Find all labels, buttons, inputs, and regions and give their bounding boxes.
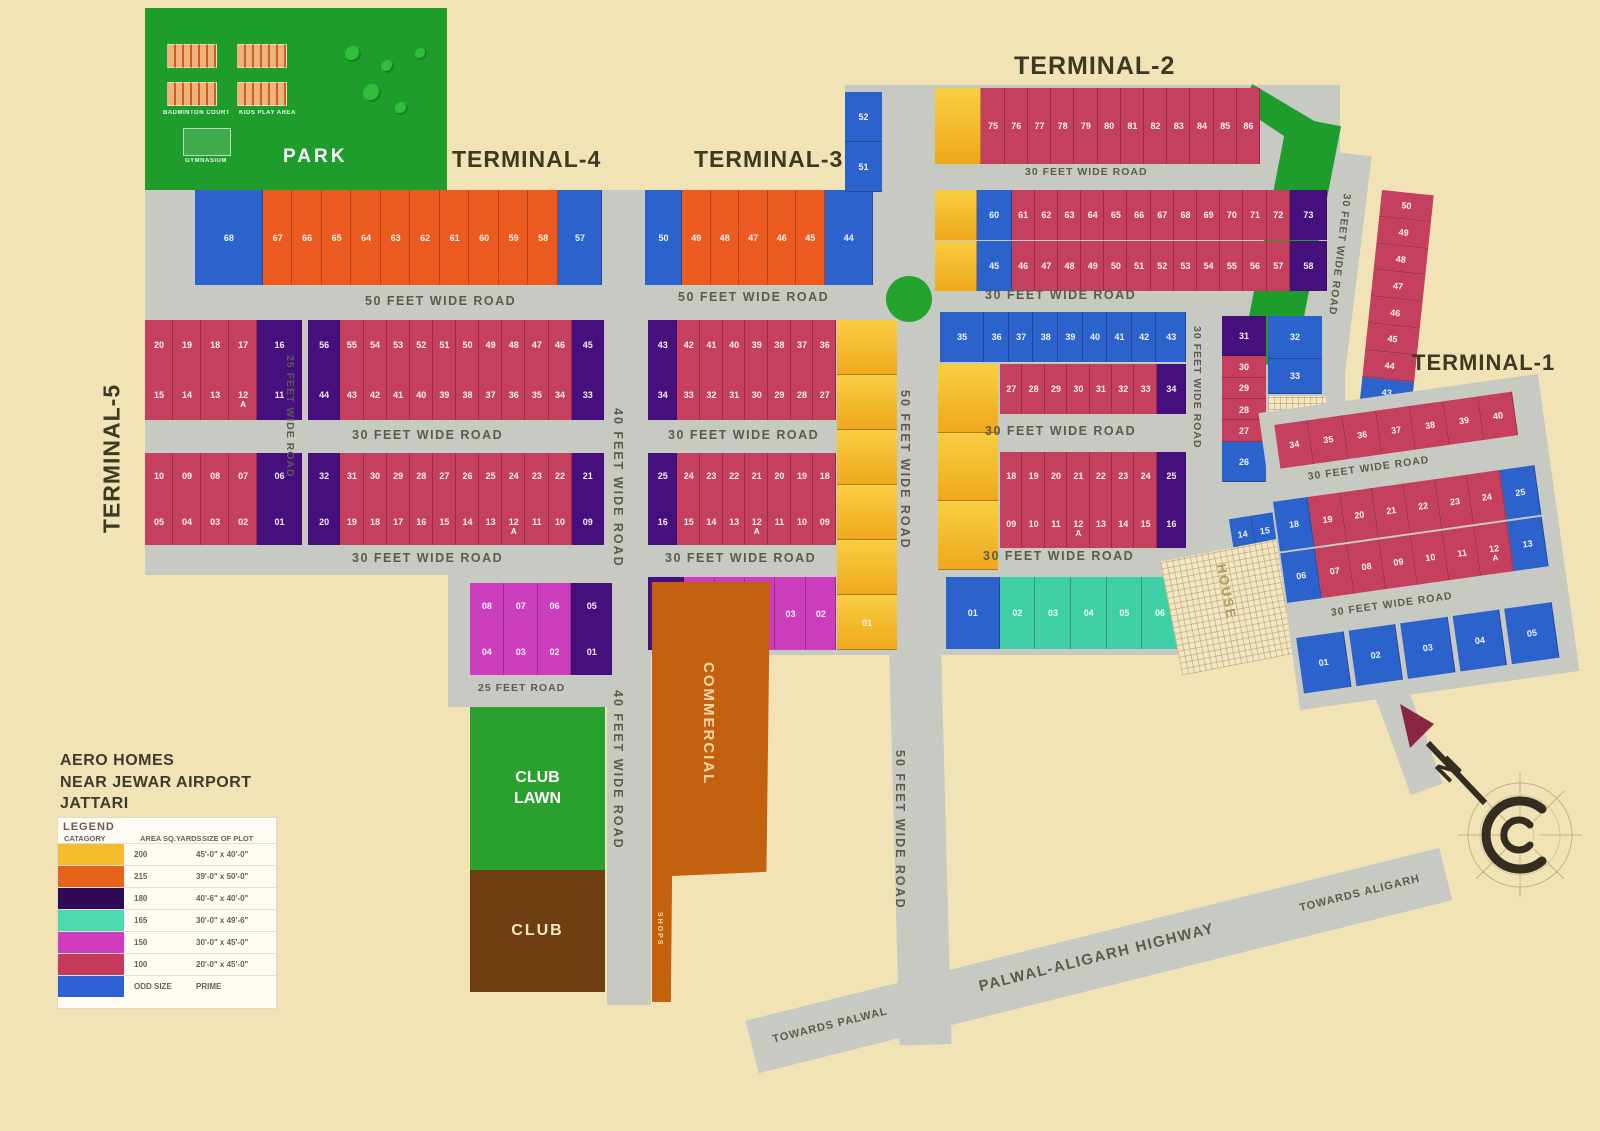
road-label: 50 FEET WIDE ROAD bbox=[678, 290, 829, 304]
plot-cell: 75 bbox=[981, 88, 1004, 164]
plot-cell: 51 bbox=[1127, 241, 1150, 291]
plot-cell: 17 bbox=[229, 320, 257, 370]
plot-cell: 16 bbox=[1157, 500, 1186, 548]
terminal3-side-column: 5251 bbox=[845, 92, 882, 192]
plot-cell: 68 bbox=[195, 190, 263, 285]
badminton-court-icon bbox=[237, 44, 287, 68]
central-block-upper-row1: 565554535251504948474645 bbox=[308, 320, 604, 370]
legend-area: 100 bbox=[124, 960, 196, 969]
plot-cell: 29 bbox=[768, 370, 791, 420]
plot-cell: 37 bbox=[1009, 312, 1034, 362]
plot-cell: 31 bbox=[1222, 316, 1266, 356]
plot-cell: 45 bbox=[796, 190, 825, 285]
legend-swatch bbox=[58, 844, 124, 865]
plot-cell: 78 bbox=[1051, 88, 1074, 164]
roundabout bbox=[886, 276, 932, 322]
plot-cell bbox=[837, 485, 897, 540]
plot-cell: 09 bbox=[173, 453, 201, 499]
legend: LEGEND CATAGORY AREA SQ.YARDS SIZE OF PL… bbox=[58, 818, 276, 1008]
legend-size: 39'-0" x 50'-0" bbox=[196, 872, 276, 881]
mid-block-row1: 4342414039383736 bbox=[648, 320, 836, 370]
left-magenta-row1: 08070605 bbox=[470, 583, 612, 629]
plot-cell: 65 bbox=[1104, 190, 1127, 240]
plot-cell: 36 bbox=[813, 320, 836, 370]
plot-cell: 51 bbox=[845, 142, 882, 192]
plot-cell: 31 bbox=[340, 453, 363, 499]
plot-cell: 53 bbox=[1174, 241, 1197, 291]
plot-cell: 37 bbox=[479, 370, 502, 420]
plot-cell: 41 bbox=[700, 320, 723, 370]
plot-cell: 05 bbox=[1107, 577, 1143, 649]
road-label: 25 FEET WIDE ROAD bbox=[284, 355, 296, 478]
plot-cell: 04 bbox=[470, 629, 504, 675]
right-column1: 313029282726 bbox=[1222, 316, 1266, 482]
plot-cell: 66 bbox=[292, 190, 322, 285]
legend-swatch bbox=[58, 866, 124, 887]
plot-cell: 02 bbox=[806, 577, 836, 650]
plot-cell: 48 bbox=[1058, 241, 1081, 291]
plot-cell: 42 bbox=[677, 320, 700, 370]
road-label: 40 FEET WIDE ROAD bbox=[611, 690, 625, 850]
plot-cell: 42 bbox=[364, 370, 387, 420]
plot-cell: 20 bbox=[308, 499, 340, 545]
right-block-row1: 2728293031323334 bbox=[1000, 364, 1186, 414]
road-label: 25 FEET ROAD bbox=[478, 682, 565, 694]
plot-cell: 35 bbox=[525, 370, 548, 420]
plot-cell: 50 bbox=[645, 190, 682, 285]
plot-cell: 38 bbox=[1033, 312, 1058, 362]
plot-cell: 02 bbox=[1348, 624, 1403, 686]
legend-row: 16530'-0" x 49'-6" bbox=[58, 909, 276, 931]
gym-icon bbox=[183, 128, 231, 156]
plot-cell: 33 bbox=[1134, 364, 1156, 414]
plot-cell: 81 bbox=[1121, 88, 1144, 164]
legend-size: 30'-0" x 49'-6" bbox=[196, 916, 276, 925]
terminal1-label: TERMINAL-1 bbox=[1412, 350, 1555, 376]
kids-play-icon bbox=[237, 82, 287, 106]
plot-cell: 45 bbox=[572, 320, 604, 370]
plot-cell: 44 bbox=[308, 370, 340, 420]
plot-cell: 16 bbox=[648, 499, 677, 545]
road-label: 30 FEET WIDE ROAD bbox=[983, 549, 1134, 563]
plot-cell: 13 bbox=[201, 370, 229, 420]
plot-cell: 29 bbox=[1045, 364, 1067, 414]
title-line2: NEAR JEWAR AIRPORT bbox=[60, 772, 252, 794]
right-blue-row: 353637383940414243 bbox=[940, 312, 1186, 362]
plot-cell: 38 bbox=[768, 320, 791, 370]
site-plan-map: 30 FEET WIDE ROAD 30 FEET WIDE ROAD BADM… bbox=[0, 0, 1600, 1131]
plot-cell: 33 bbox=[1268, 359, 1322, 394]
terminal5-blockA-row1: 2019181716 bbox=[145, 320, 302, 370]
legend-swatch bbox=[58, 910, 124, 931]
yellow-column-central: 01 bbox=[837, 320, 897, 650]
tree-icon bbox=[363, 84, 381, 102]
commercial: COMMERCIAL SHOPS bbox=[652, 582, 770, 1002]
plot-cell: 13 bbox=[1090, 500, 1112, 548]
plot-cell: 27 bbox=[433, 453, 456, 499]
plot-cell: 35 bbox=[940, 312, 984, 362]
plot-cell: 20 bbox=[1045, 452, 1067, 500]
plot-cell: 46 bbox=[1012, 241, 1035, 291]
plot-cell: 62 bbox=[1035, 190, 1058, 240]
plot-cell: 36 bbox=[984, 312, 1009, 362]
legend-row: 10020'-0" x 45'-0" bbox=[58, 953, 276, 975]
plot-cell: 17 bbox=[387, 499, 410, 545]
legend-row: 15030'-0" x 45'-0" bbox=[58, 931, 276, 953]
plot-cell: 01 bbox=[571, 629, 612, 675]
plot-cell: 03 bbox=[201, 499, 229, 545]
road-label: 40 FEET WIDE ROAD bbox=[611, 408, 625, 568]
terminal5-blockB-row1: 1009080706 bbox=[145, 453, 302, 499]
plot-cell: 26 bbox=[456, 453, 479, 499]
plot-cell: 18 bbox=[813, 453, 836, 499]
road-label: 30 FEET WIDE ROAD bbox=[985, 288, 1136, 302]
plot-cell: 36 bbox=[502, 370, 525, 420]
plot-cell: 28 bbox=[1022, 364, 1044, 414]
project-title: AERO HOMES NEAR JEWAR AIRPORT JATTARI bbox=[60, 750, 252, 815]
legend-size: 40'-6" x 40'-0" bbox=[196, 894, 276, 903]
terminal5-blockA-row2: 15141312A11 bbox=[145, 370, 302, 420]
road-label: 30 FEET WIDE ROAD bbox=[352, 551, 503, 565]
plot-cell: 85 bbox=[1214, 88, 1237, 164]
terminal5-label: TERMINAL-5 bbox=[99, 349, 126, 569]
mid-block-row2: 3433323130292827 bbox=[648, 370, 836, 420]
road-label: 50 FEET WIDE ROAD bbox=[893, 750, 907, 910]
plot-cell: 70 bbox=[1220, 190, 1243, 240]
plot-cell bbox=[837, 430, 897, 485]
plot-cell: 63 bbox=[1058, 190, 1081, 240]
plot-cell: 20 bbox=[768, 453, 791, 499]
plot-cell: 40 bbox=[410, 370, 433, 420]
plot-cell: 66 bbox=[1127, 190, 1150, 240]
plot-cell: 47 bbox=[1035, 241, 1058, 291]
plot-cell: 41 bbox=[1107, 312, 1132, 362]
club-lawn: CLUB LAWN bbox=[470, 707, 605, 870]
legend-size: PRIME bbox=[196, 982, 276, 991]
plot-cell bbox=[935, 88, 981, 164]
plot-cell: 03 bbox=[775, 577, 805, 650]
plot-cell: 08 bbox=[470, 583, 504, 629]
plot-cell: 38 bbox=[456, 370, 479, 420]
terminal4-label: TERMINAL-4 bbox=[452, 146, 601, 173]
mid-block-row3: 2524232221201918 bbox=[648, 453, 836, 499]
plot-cell: 04 bbox=[1452, 609, 1507, 671]
highway-name: PALWAL-ALIGARH HIGHWAY bbox=[977, 920, 1216, 995]
plot-cell: 15 bbox=[1134, 500, 1156, 548]
road-label: 50 FEET WIDE ROAD bbox=[898, 390, 912, 550]
central-block-lower-row2: 201918171615141312A111009 bbox=[308, 499, 604, 545]
plot-cell: 10 bbox=[1022, 500, 1044, 548]
legend-area: 150 bbox=[124, 938, 196, 947]
club-lawn-label: CLUB LAWN bbox=[503, 768, 573, 810]
plot-cell: 30 bbox=[745, 370, 768, 420]
right-block-row3: 09101112A13141516 bbox=[1000, 500, 1186, 548]
plot-cell: 08 bbox=[201, 453, 229, 499]
terminal1-fan: 34353637383940 30 FEET WIDE ROAD 1819202… bbox=[1258, 374, 1579, 710]
legend-area: ODD SIZE bbox=[124, 982, 196, 991]
tree-icon bbox=[415, 48, 427, 60]
plot-cell: 52 bbox=[845, 92, 882, 142]
plot-cell: 34 bbox=[549, 370, 572, 420]
plot-cell: 57 bbox=[1267, 241, 1290, 291]
plot-cell: 22 bbox=[1090, 452, 1112, 500]
plot-cell: 13 bbox=[479, 499, 502, 545]
plot-cell: 68 bbox=[1174, 190, 1197, 240]
plot-cell: 09 bbox=[572, 499, 604, 545]
plot-cell: 25 bbox=[648, 453, 677, 499]
shops-label: SHOPS bbox=[656, 912, 663, 947]
plot-cell: 21 bbox=[1067, 452, 1089, 500]
right-column2: 3233 bbox=[1268, 316, 1322, 394]
plot-cell: 26 bbox=[1222, 442, 1266, 482]
house-label: HOUSE bbox=[1214, 563, 1239, 621]
plot-cell: 34 bbox=[648, 370, 677, 420]
highway: TOWARDS PALWAL PALWAL-ALIGARH HIGHWAY TO… bbox=[745, 848, 1452, 1073]
plot-cell: 45 bbox=[977, 241, 1012, 291]
plot-cell: 50 bbox=[1104, 241, 1127, 291]
terminal2-label: TERMINAL-2 bbox=[1014, 52, 1175, 81]
club-label: CLUB bbox=[511, 922, 563, 940]
legend-area: 200 bbox=[124, 850, 196, 859]
plot-cell: 62 bbox=[410, 190, 440, 285]
plot-cell: 30 bbox=[364, 453, 387, 499]
plot-cell: 14 bbox=[700, 499, 723, 545]
plot-cell: 02 bbox=[229, 499, 257, 545]
terminal3-plot-row: 50494847464544 bbox=[645, 190, 873, 285]
plot-cell: 14 bbox=[1112, 500, 1134, 548]
plot-cell: 11 bbox=[525, 499, 548, 545]
plot-cell: 03 bbox=[1400, 617, 1455, 679]
plot-cell: 10 bbox=[549, 499, 572, 545]
plot-cell: 12A bbox=[745, 499, 768, 545]
plot-cell: 63 bbox=[381, 190, 411, 285]
plot-cell: 64 bbox=[1081, 190, 1104, 240]
plot-cell: 39 bbox=[433, 370, 456, 420]
plot-cell: 05 bbox=[571, 583, 612, 629]
plot-cell: 46 bbox=[768, 190, 797, 285]
plot-cell: 24 bbox=[1134, 452, 1156, 500]
terminal4-plot-row: 686766656463626160595857 bbox=[195, 190, 602, 285]
plot-cell: 07 bbox=[229, 453, 257, 499]
plot-cell: 30 bbox=[1067, 364, 1089, 414]
terminal2-top-row: 757677787980818283848586 bbox=[935, 88, 1260, 164]
legend-title: LEGEND bbox=[58, 818, 276, 834]
plot-cell bbox=[938, 433, 998, 502]
legend-area: 215 bbox=[124, 872, 196, 881]
club: CLUB bbox=[470, 870, 605, 992]
legend-header-area: AREA SQ.YARDS bbox=[130, 834, 202, 843]
plot-cell: 11 bbox=[1045, 500, 1067, 548]
highway-towards-aligarh: TOWARDS ALIGARH bbox=[1298, 873, 1421, 915]
plot-cell: 21 bbox=[745, 453, 768, 499]
plot-cell: 32 bbox=[308, 453, 340, 499]
plot-cell: 82 bbox=[1144, 88, 1167, 164]
plot-cell: 13 bbox=[723, 499, 746, 545]
plot-cell: 39 bbox=[1058, 312, 1083, 362]
terminal2-row1: 6061626364656667686970717273 bbox=[935, 190, 1327, 240]
road-label: 30 FEET WIDE ROAD bbox=[1326, 193, 1353, 316]
plot-cell: 34 bbox=[1157, 364, 1186, 414]
yellow-column-right bbox=[938, 364, 998, 570]
plot-cell: 09 bbox=[1000, 500, 1022, 548]
plot-cell: 23 bbox=[1112, 452, 1134, 500]
plot-cell bbox=[938, 364, 998, 433]
plot-cell: 31 bbox=[1090, 364, 1112, 414]
plot-cell: 21 bbox=[572, 453, 604, 499]
plot-cell: 56 bbox=[1243, 241, 1266, 291]
plot-cell: 32 bbox=[700, 370, 723, 420]
legend-size: 45'-0" x 40'-0" bbox=[196, 850, 276, 859]
park: BADMINTON COURT KIDS PLAY AREA GYMNASIUM… bbox=[145, 8, 447, 190]
plot-cell: 28 bbox=[791, 370, 814, 420]
badminton-court-icon bbox=[167, 44, 217, 68]
road-label: 30 FEET WIDE ROAD bbox=[1025, 166, 1148, 178]
gym-label: GYMNASIUM bbox=[185, 158, 227, 164]
plot-cell: 05 bbox=[145, 499, 173, 545]
legend-size: 30'-0" x 45'-0" bbox=[196, 938, 276, 947]
plot-cell: 25 bbox=[1499, 465, 1541, 519]
terminal3-label: TERMINAL-3 bbox=[694, 146, 843, 173]
plot-cell: 19 bbox=[791, 453, 814, 499]
plot-cell bbox=[837, 540, 897, 595]
plot-cell: 60 bbox=[977, 190, 1012, 240]
plot-cell: 86 bbox=[1237, 88, 1260, 164]
mid-block-row4: 1615141312A111009 bbox=[648, 499, 836, 545]
plot-cell bbox=[837, 320, 897, 375]
highway-towards-palwal: TOWARDS PALWAL bbox=[771, 1005, 888, 1045]
plot-cell: 52 bbox=[1151, 241, 1174, 291]
plot-cell: 48 bbox=[502, 320, 525, 370]
legend-row: ODD SIZEPRIME bbox=[58, 975, 276, 997]
plot-cell: 29 bbox=[387, 453, 410, 499]
plot-cell: 46 bbox=[549, 320, 572, 370]
plot-cell: 01 bbox=[837, 595, 897, 650]
terminal5-blockB-row2: 0504030201 bbox=[145, 499, 302, 545]
plot-cell: 09 bbox=[813, 499, 836, 545]
plot-cell: 53 bbox=[387, 320, 410, 370]
plot-cell: 64 bbox=[351, 190, 381, 285]
road-label: 30 FEET WIDE ROAD bbox=[665, 551, 816, 565]
plot-cell: 47 bbox=[525, 320, 548, 370]
plot-cell: 77 bbox=[1028, 88, 1051, 164]
left-magenta-row2: 04030201 bbox=[470, 629, 612, 675]
legend-swatch bbox=[58, 888, 124, 909]
plot-cell: 42 bbox=[1132, 312, 1157, 362]
plot-cell: 43 bbox=[648, 320, 677, 370]
plot-cell: 03 bbox=[1035, 577, 1071, 649]
plot-cell: 40 bbox=[723, 320, 746, 370]
plot-cell: 18 bbox=[1000, 452, 1022, 500]
plot-cell: 01 bbox=[1296, 631, 1351, 693]
kids-play-icon bbox=[167, 82, 217, 106]
commercial-label: COMMERCIAL bbox=[700, 662, 717, 785]
right-block-row2: 1819202122232425 bbox=[1000, 452, 1186, 500]
plot-cell: 25 bbox=[479, 453, 502, 499]
plot-cell: 47 bbox=[739, 190, 768, 285]
plot-cell: 72 bbox=[1267, 190, 1290, 240]
plot-cell: 05 bbox=[1504, 602, 1559, 664]
plot-cell: 18 bbox=[201, 320, 229, 370]
legend-header-category: CATAGORY bbox=[58, 834, 130, 843]
plot-cell: 18 bbox=[364, 499, 387, 545]
plot-cell: 44 bbox=[825, 190, 873, 285]
plot-cell: 76 bbox=[1005, 88, 1028, 164]
plot-cell: 61 bbox=[1012, 190, 1035, 240]
road-label: 30 FEET WIDE ROAD bbox=[1191, 326, 1203, 449]
plot-cell: 50 bbox=[456, 320, 479, 370]
plot-cell: 43 bbox=[340, 370, 363, 420]
plot-cell: 51 bbox=[433, 320, 456, 370]
plot-cell: 14 bbox=[173, 370, 201, 420]
plot-cell: 31 bbox=[723, 370, 746, 420]
plot-cell: 24 bbox=[677, 453, 700, 499]
legend-size: 20'-0" x 45'-0" bbox=[196, 960, 276, 969]
plot-cell: 12A bbox=[502, 499, 525, 545]
plot-cell: 10 bbox=[791, 499, 814, 545]
plot-cell: 48 bbox=[711, 190, 740, 285]
title-line3: JATTARI bbox=[60, 793, 252, 815]
plot-cell: 15 bbox=[145, 370, 173, 420]
plot-cell: 56 bbox=[308, 320, 340, 370]
plot-cell: 01 bbox=[946, 577, 1000, 649]
plot-cell: 22 bbox=[723, 453, 746, 499]
plot-cell: 41 bbox=[387, 370, 410, 420]
plot-cell: 49 bbox=[479, 320, 502, 370]
legend-row: 20045'-0" x 40'-0" bbox=[58, 843, 276, 865]
terminal2-row2: 4546474849505152535455565758 bbox=[935, 241, 1327, 291]
park-label: PARK bbox=[283, 146, 347, 168]
tree-icon bbox=[345, 46, 361, 62]
plot-cell: 37 bbox=[791, 320, 814, 370]
road-label: 30 FEET WIDE ROAD bbox=[352, 428, 503, 442]
plot-cell: 04 bbox=[173, 499, 201, 545]
plot-cell: 11 bbox=[768, 499, 791, 545]
plot-cell: 19 bbox=[173, 320, 201, 370]
plot-cell: 20 bbox=[145, 320, 173, 370]
legend-row: 21539'-0" x 50'-0" bbox=[58, 865, 276, 887]
legend-header: CATAGORY AREA SQ.YARDS SIZE OF PLOT bbox=[58, 834, 276, 843]
plot-cell: 23 bbox=[700, 453, 723, 499]
plot-cell: 67 bbox=[263, 190, 293, 285]
plot-cell: 49 bbox=[682, 190, 711, 285]
plot-cell: 40 bbox=[1478, 392, 1518, 440]
plot-cell: 71 bbox=[1243, 190, 1266, 240]
plot-cell: 58 bbox=[1290, 241, 1327, 291]
plot-cell: 59 bbox=[499, 190, 529, 285]
plot-cell: 02 bbox=[1000, 577, 1036, 649]
plot-cell: 32 bbox=[1268, 316, 1322, 359]
plot-cell: 12A bbox=[1067, 500, 1089, 548]
plot-cell: 23 bbox=[525, 453, 548, 499]
plot-cell: 24 bbox=[502, 453, 525, 499]
legend-swatch bbox=[58, 976, 124, 997]
plot-cell: 55 bbox=[1220, 241, 1243, 291]
legend-row: 18040'-6" x 40'-0" bbox=[58, 887, 276, 909]
north-arrow-icon bbox=[1400, 704, 1434, 748]
plot-cell: 67 bbox=[1151, 190, 1174, 240]
plot-cell: 27 bbox=[1000, 364, 1022, 414]
plot-cell bbox=[935, 190, 977, 240]
road-label: 50 FEET WIDE ROAD bbox=[365, 294, 516, 308]
kids-play-label: KIDS PLAY AREA bbox=[239, 110, 296, 116]
plot-cell: 10 bbox=[145, 453, 173, 499]
legend-swatch bbox=[58, 932, 124, 953]
plot-cell: 80 bbox=[1098, 88, 1121, 164]
badminton-label: BADMINTON COURT bbox=[163, 110, 230, 116]
plot-cell: 15 bbox=[677, 499, 700, 545]
plot-cell: 55 bbox=[340, 320, 363, 370]
legend-area: 165 bbox=[124, 916, 196, 925]
